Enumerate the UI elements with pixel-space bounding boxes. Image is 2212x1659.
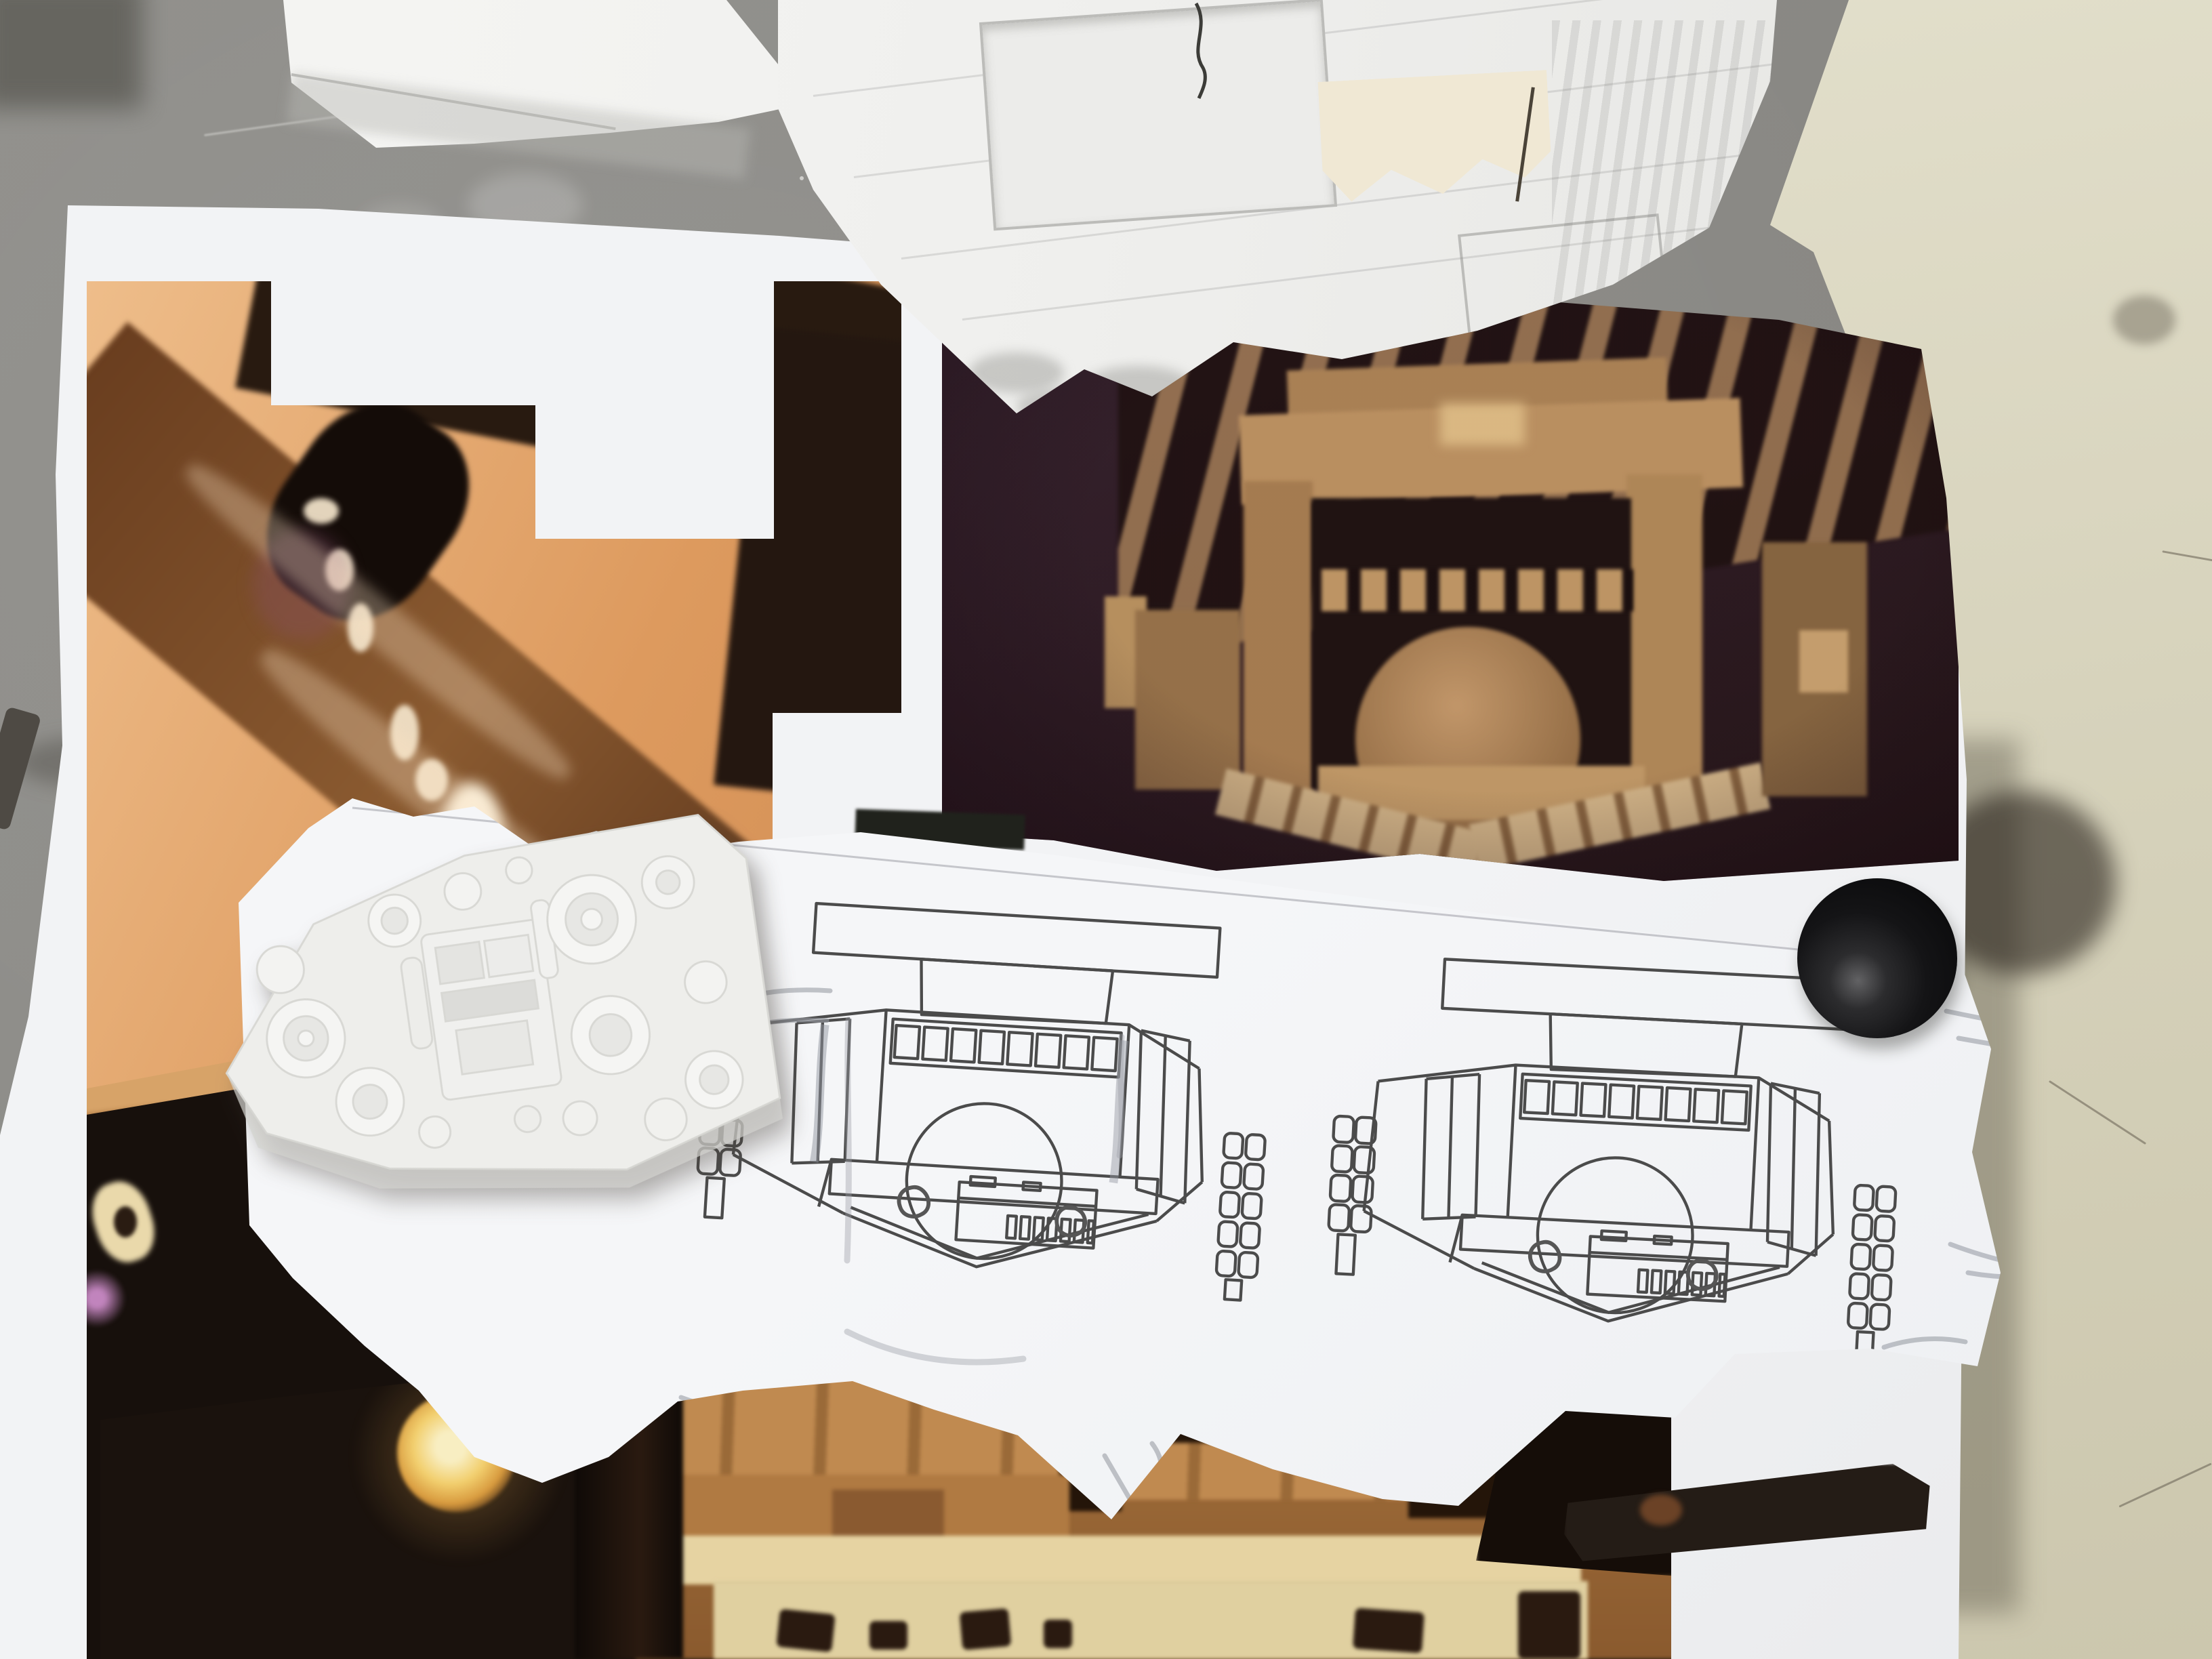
paper-cutout [271, 224, 537, 405]
table-smudge [2113, 295, 2175, 344]
debris-shadow [114, 1206, 137, 1237]
stray-fiber [1183, 0, 1244, 102]
cream-band [680, 1536, 1581, 1584]
knob-ball [1797, 878, 1957, 1038]
panel-glyph [869, 1621, 907, 1650]
workbench-photo [0, 0, 2212, 1659]
table-fiber [2118, 1462, 2211, 1507]
surface-corner-shade [0, 0, 142, 108]
panel-glyph [960, 1608, 1012, 1650]
highlight-blob [304, 498, 339, 524]
tape-strip [1318, 70, 1555, 229]
torn-gap-accent [1640, 1494, 1682, 1525]
table-fiber [2049, 1080, 2146, 1145]
table-fiber [2162, 550, 2212, 563]
panel-glyph [1044, 1620, 1072, 1648]
panel-glyph [1518, 1591, 1580, 1659]
cream-panel [714, 1581, 1588, 1659]
resin-part [180, 779, 808, 1271]
panel-glyph [776, 1609, 835, 1652]
recessed-panel [979, 0, 1337, 230]
paper-cutout [535, 224, 774, 539]
panel-glyph [1353, 1608, 1425, 1654]
